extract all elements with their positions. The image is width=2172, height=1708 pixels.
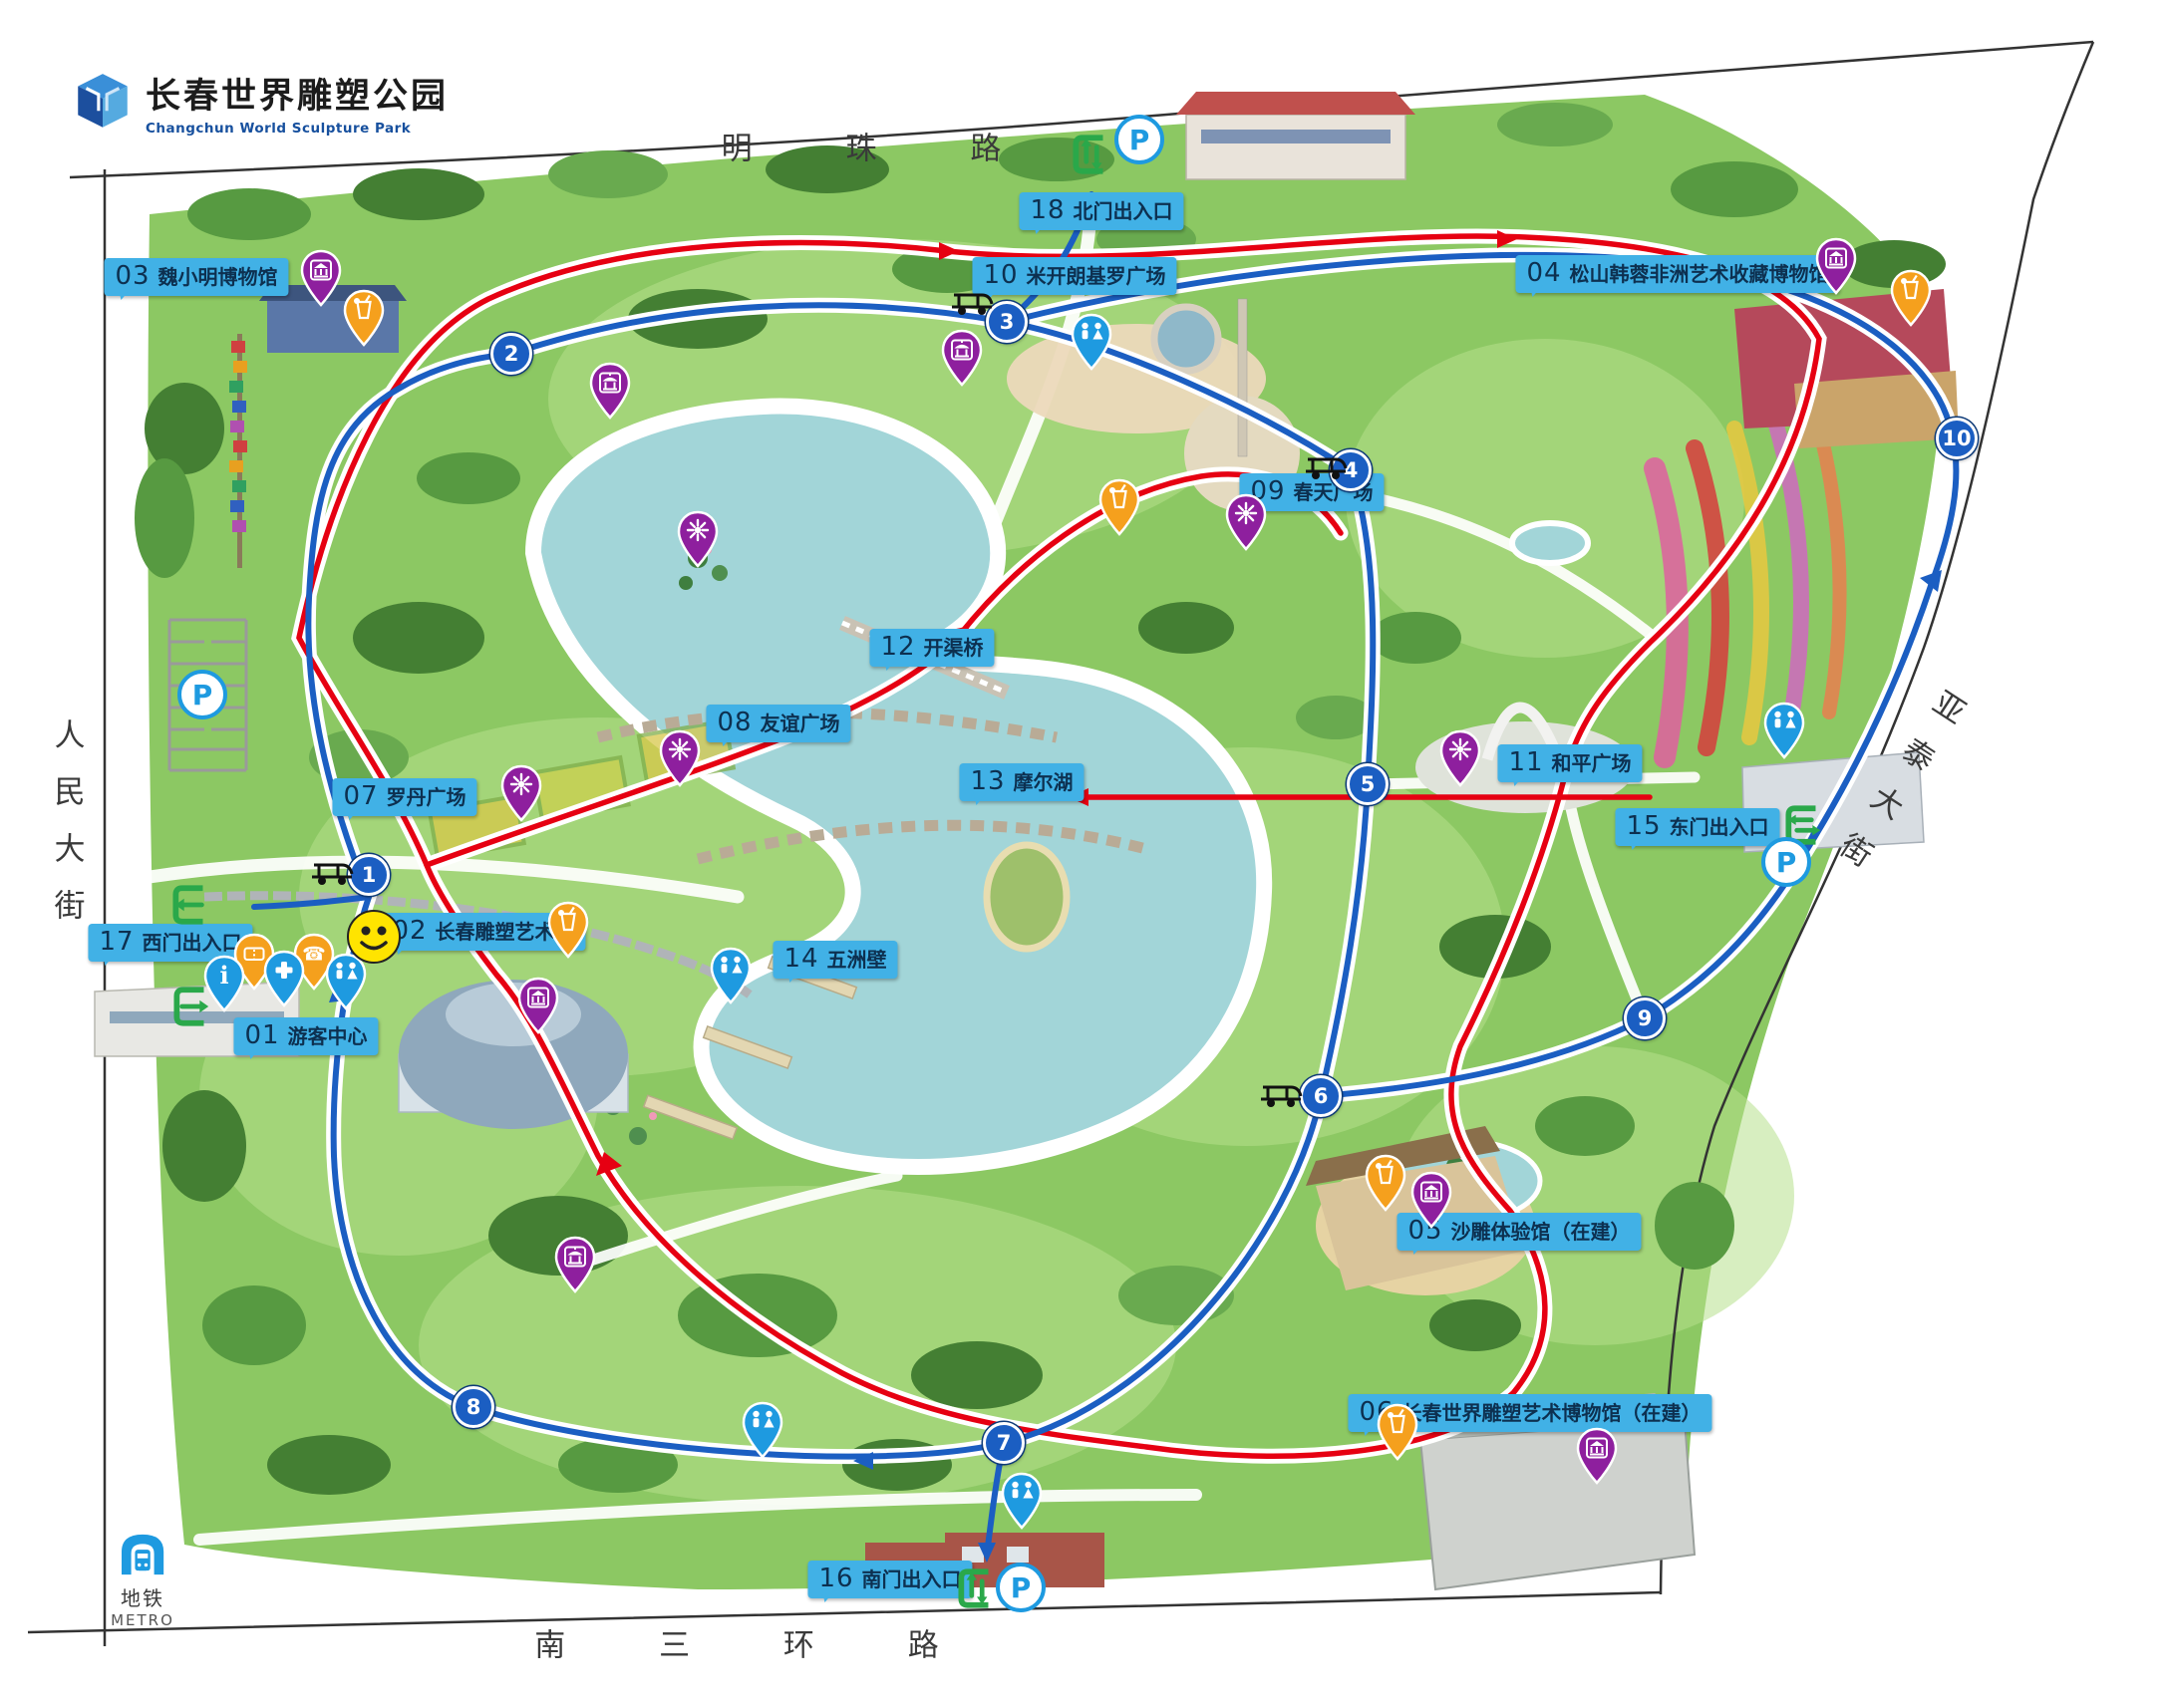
bus-stop-10: 10 (1936, 418, 1978, 459)
location-name: 南门出入口 (862, 1564, 962, 1592)
location-label-18: 18北门出入口 (1019, 192, 1183, 230)
gate-updown-icon (953, 1565, 1001, 1612)
metro-label-cn: 地铁 (111, 1582, 174, 1611)
location-number: 17 (99, 927, 134, 957)
location-number: 11 (1508, 747, 1543, 777)
pin-drink-icon (342, 289, 386, 347)
bus-stop-2: 2 (490, 333, 532, 375)
location-label-15: 15东门出入口 (1615, 808, 1779, 846)
location-number: 03 (115, 261, 150, 291)
location-number: 07 (343, 781, 378, 811)
location-name: 游客中心 (288, 1020, 368, 1049)
location-name: 西门出入口 (143, 927, 242, 956)
location-label-14: 14五洲壁 (773, 941, 897, 979)
sightseeing-cart-icon (1257, 1079, 1305, 1109)
pin-museum-icon (516, 977, 560, 1034)
location-number: 04 (1526, 258, 1561, 288)
pin-toilet-icon (1070, 313, 1113, 371)
pin-drink-icon (1097, 478, 1141, 536)
location-number: 16 (818, 1564, 853, 1593)
sightseeing-cart-icon (948, 287, 996, 317)
pin-drink-icon (1364, 1154, 1407, 1212)
location-name: 开渠桥 (924, 632, 984, 661)
location-number: 14 (783, 944, 818, 974)
bus-stop-8: 8 (453, 1386, 494, 1428)
location-name: 米开朗基罗广场 (1027, 260, 1166, 289)
pin-drink-icon (1889, 269, 1933, 327)
location-label-13: 13摩尔湖 (959, 763, 1084, 801)
location-label-10: 10米开朗基罗广场 (972, 257, 1176, 295)
location-name: 沙雕体验馆（在建） (1451, 1216, 1631, 1245)
pin-drink-icon (1376, 1403, 1419, 1461)
location-number: 12 (880, 632, 915, 662)
pin-sculpture-icon (676, 510, 720, 568)
location-label-16: 16南门出入口 (807, 1561, 972, 1598)
location-number: 13 (970, 766, 1005, 796)
bus-stop-6: 6 (1300, 1075, 1342, 1117)
logo-subtitle: Changchun World Sculpture Park (146, 121, 449, 137)
location-label-04: 04松山韩蓉非洲艺术收藏博物馆 (1515, 255, 1839, 293)
pin-sculpture-icon (658, 729, 702, 787)
pin-drink-icon (546, 901, 590, 959)
pin-toilet-icon (709, 947, 753, 1004)
metro-label-en: METRO (111, 1611, 174, 1629)
pin-pavilion-icon (588, 362, 632, 420)
location-name: 松山韩蓉非洲艺术收藏博物馆 (1570, 258, 1829, 287)
location-label-01: 01游客中心 (233, 1017, 378, 1055)
pin-pavilion-icon (940, 329, 984, 387)
pin-museum-icon (1575, 1427, 1619, 1485)
location-label-08: 08友谊广场 (706, 705, 850, 742)
location-name: 友谊广场 (761, 708, 840, 736)
bus-stop-7: 7 (983, 1422, 1025, 1464)
location-name: 罗丹广场 (387, 781, 466, 810)
location-number: 01 (244, 1020, 279, 1050)
pin-museum-icon (1814, 237, 1858, 295)
location-label-07: 07罗丹广场 (332, 778, 476, 816)
svg-text:i: i (219, 961, 228, 990)
gate-left-icon (167, 881, 215, 929)
pin-museum-icon (299, 249, 343, 307)
bus-stop-9: 9 (1624, 997, 1666, 1039)
smiley-icon (345, 908, 403, 966)
road-label-nansanhuan: 南 三 环 路 (534, 1620, 981, 1665)
metro-arch-icon (116, 1531, 169, 1576)
parking-icon: P (1114, 115, 1164, 164)
location-name: 魏小明博物馆 (158, 261, 278, 290)
pin-sculpture-icon (499, 764, 543, 822)
metro-logo: 地铁 METRO (111, 1531, 174, 1629)
road-label-renmin: 人民大街 (45, 718, 90, 946)
location-label-11: 11和平广场 (1497, 744, 1642, 782)
pin-toilet-icon (1762, 702, 1806, 759)
parking-icon: P (1761, 837, 1811, 887)
location-label-12: 12开渠桥 (869, 629, 994, 667)
parking-icon: P (996, 1563, 1046, 1612)
pin-sculpture-icon (1438, 729, 1482, 787)
location-name: 长春世界雕塑艺术博物馆（在建） (1402, 1397, 1702, 1426)
pin-firstaid-icon (262, 950, 306, 1007)
location-number: 15 (1626, 811, 1661, 841)
pin-museum-icon (1409, 1171, 1453, 1229)
park-logo: 长春世界雕塑公园 Changchun World Sculpture Park (72, 68, 449, 137)
location-name: 和平广场 (1552, 747, 1632, 776)
gate-right-icon (168, 983, 216, 1030)
location-name: 摩尔湖 (1014, 766, 1074, 795)
gate-updown-icon (1068, 131, 1115, 178)
bus-stop-5: 5 (1347, 763, 1389, 805)
pin-toilet-icon (1000, 1472, 1044, 1530)
sightseeing-cart-icon (308, 857, 356, 887)
location-number: 18 (1030, 195, 1065, 225)
road-label-yatai: 亚泰大街 (1813, 680, 1975, 895)
pin-sculpture-icon (1224, 493, 1268, 551)
logo-title: 长春世界雕塑公园 (146, 68, 449, 119)
location-number: 08 (717, 708, 752, 737)
parking-icon: P (177, 670, 227, 719)
sightseeing-cart-icon (1302, 451, 1350, 481)
location-number: 10 (983, 260, 1018, 290)
location-name: 北门出入口 (1074, 195, 1173, 224)
location-label-03: 03魏小明博物馆 (104, 258, 288, 296)
logo-cube-icon (72, 70, 134, 136)
road-label-mingzhu: 明 珠 路 (722, 124, 1044, 168)
pin-toilet-icon (741, 1401, 784, 1459)
park-map: 长春世界雕塑公园 Changchun World Sculpture Park … (0, 0, 2172, 1708)
location-name: 五洲壁 (827, 944, 887, 973)
location-name: 东门出入口 (1670, 811, 1769, 840)
pin-pavilion-icon (553, 1236, 597, 1293)
